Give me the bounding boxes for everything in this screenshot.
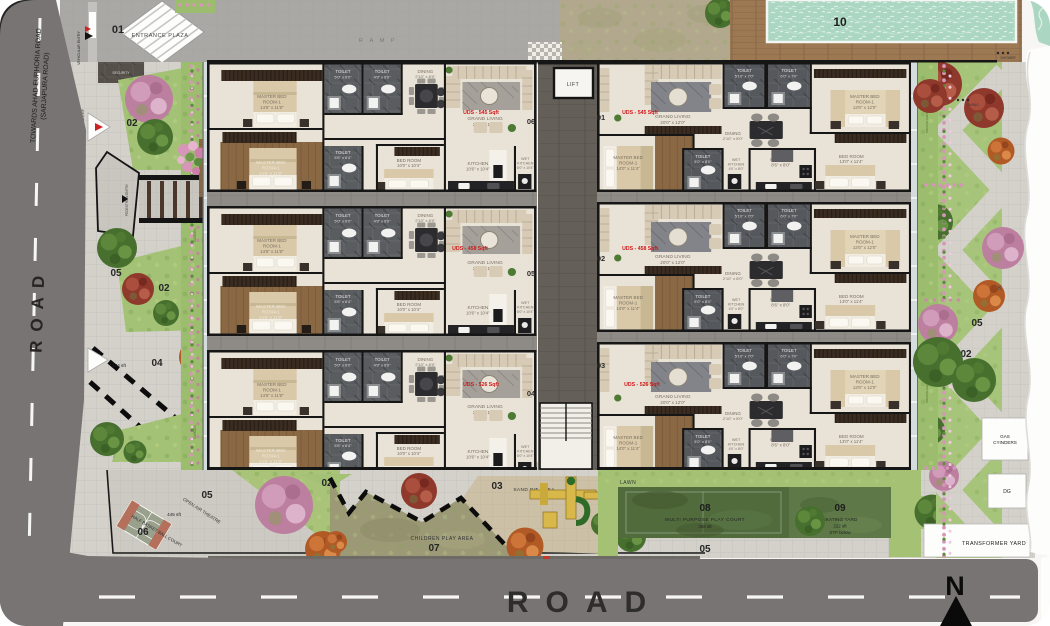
svg-text:ROAD: ROAD xyxy=(27,266,49,353)
svg-text:RAMP: RAMP xyxy=(359,38,401,44)
svg-text:05: 05 xyxy=(527,269,535,278)
svg-text:08: 08 xyxy=(699,503,711,514)
svg-text:06: 06 xyxy=(137,527,149,538)
svg-text:UDS - 458 Sqft: UDS - 458 Sqft xyxy=(622,246,658,252)
svg-text:445 sft: 445 sft xyxy=(167,512,182,517)
svg-text:01: 01 xyxy=(597,113,605,122)
svg-text:UDS - 526 Sqft: UDS - 526 Sqft xyxy=(463,382,499,388)
svg-text:VEHICULAR ENTRY: VEHICULAR ENTRY xyxy=(77,31,81,65)
svg-text:05: 05 xyxy=(201,490,213,501)
svg-text:04: 04 xyxy=(527,389,536,398)
svg-text:03: 03 xyxy=(491,481,503,492)
svg-text:SHOWER: SHOWER xyxy=(1000,56,1016,60)
svg-text:09: 09 xyxy=(834,503,846,514)
svg-text:01: 01 xyxy=(112,24,124,36)
svg-text:05: 05 xyxy=(971,318,983,329)
svg-text:LIFT: LIFT xyxy=(567,82,579,88)
svg-text:TRANSFORMER YARD: TRANSFORMER YARD xyxy=(962,541,1026,547)
svg-text:LAWN: LAWN xyxy=(620,480,636,486)
svg-text:CYINDERS: CYINDERS xyxy=(993,440,1017,445)
svg-text:10: 10 xyxy=(833,15,847,29)
svg-text:222 sft: 222 sft xyxy=(833,524,847,529)
svg-text:SECURITY: SECURITY xyxy=(112,71,130,75)
svg-text:06: 06 xyxy=(527,117,535,126)
svg-text:GAS: GAS xyxy=(1000,434,1010,439)
svg-text:UDS - 526 Sqft: UDS - 526 Sqft xyxy=(624,382,660,388)
svg-text:04: 04 xyxy=(151,358,163,369)
svg-text:GARDEN: GARDEN xyxy=(193,227,197,241)
svg-text:MULTI PURPOSE PLAY COURT: MULTI PURPOSE PLAY COURT xyxy=(665,517,745,523)
svg-text:02: 02 xyxy=(158,283,170,294)
svg-text:UDS - 545 Sqft: UDS - 545 Sqft xyxy=(463,110,499,116)
svg-text:ENTRANCE PLAZA: ENTRANCE PLAZA xyxy=(131,33,188,39)
svg-text:N: N xyxy=(945,571,965,601)
svg-text:UDS - 545 Sqft: UDS - 545 Sqft xyxy=(622,110,658,116)
svg-text:02: 02 xyxy=(597,254,605,263)
svg-text:K: K xyxy=(998,286,1002,292)
svg-text:174 sft: 174 sft xyxy=(112,363,127,368)
svg-text:GARDEN: GARDEN xyxy=(193,424,197,438)
svg-text:05: 05 xyxy=(699,544,711,555)
svg-text:02: 02 xyxy=(126,118,138,129)
svg-text:358 sft: 358 sft xyxy=(698,524,712,529)
svg-text:05: 05 xyxy=(110,268,122,279)
svg-text:DG: DG xyxy=(1003,489,1011,495)
svg-text:UDS - 458 Sqft: UDS - 458 Sqft xyxy=(452,246,488,252)
svg-text:STP below: STP below xyxy=(829,530,851,535)
svg-text:CHILDREN PLAY AREA: CHILDREN PLAY AREA xyxy=(410,536,473,542)
svg-text:07: 07 xyxy=(428,543,440,554)
svg-text:SWING: SWING xyxy=(967,103,979,107)
svg-text:03: 03 xyxy=(597,361,605,370)
svg-text:ROAD: ROAD xyxy=(507,586,663,619)
svg-text:SKATING YARD: SKATING YARD xyxy=(823,517,858,523)
